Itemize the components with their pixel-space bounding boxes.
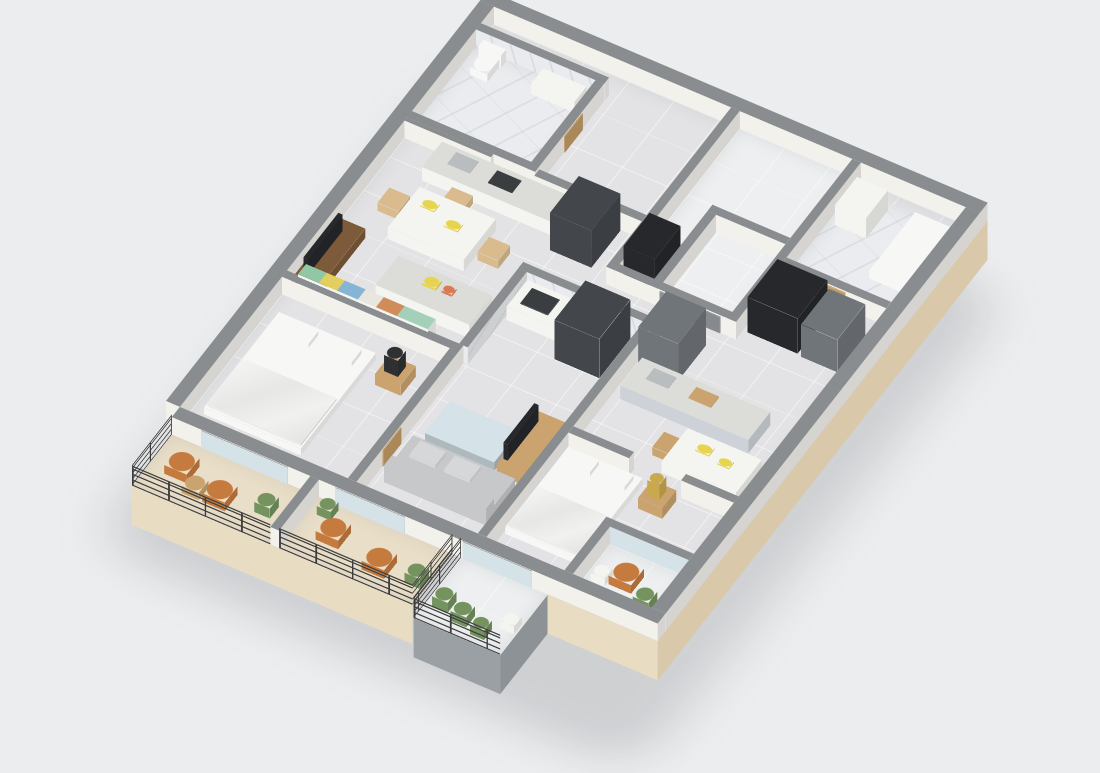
floorplan-render [0,0,1100,773]
isometric-scene [0,0,1100,773]
floor-plan [108,8,988,705]
